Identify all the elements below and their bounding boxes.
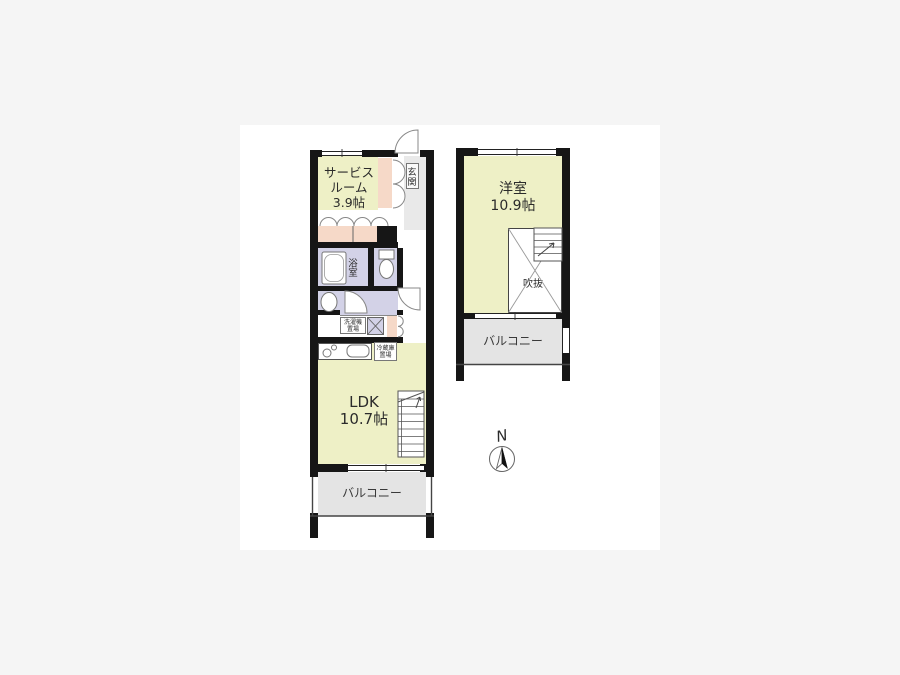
western-room-label: 洋室 10.9帖 (464, 181, 562, 215)
void-label: 吹抜 (508, 275, 558, 290)
wall-segment (556, 313, 562, 319)
closet-mid (318, 226, 377, 242)
window-segment (322, 151, 362, 157)
wall-segment (420, 150, 434, 157)
bathroom (318, 248, 368, 286)
window-segment (478, 149, 556, 155)
bathroom-label: 浴室 (344, 251, 358, 283)
wall-segment (562, 353, 570, 381)
wall-segment (318, 310, 340, 315)
kitchen-counter (318, 343, 372, 360)
wall-segment (556, 148, 570, 156)
fridge-area: 冷蔵庫 置場 (374, 342, 397, 361)
entrance-label-box: 玄関 (406, 163, 419, 189)
fridge-label: 冷蔵庫 置場 (375, 343, 396, 359)
wall-segment (318, 286, 398, 291)
balcony-2f-label: バルコニー (464, 332, 562, 349)
window-segment (348, 465, 424, 471)
window-segment (475, 313, 556, 319)
void-area (508, 228, 562, 313)
washer-label: 洗濯機 置場 (341, 318, 365, 333)
entrance-door-arc-icon (395, 130, 418, 153)
north-arrow-icon (490, 447, 515, 472)
washer-pan (367, 317, 384, 335)
wall-segment (397, 248, 403, 288)
wall-segment (456, 148, 478, 156)
wall-segment (426, 150, 434, 477)
wall-segment (310, 150, 318, 477)
wall-segment (310, 464, 348, 472)
window-segment (562, 328, 570, 353)
wall-segment (397, 310, 403, 315)
wall-segment (368, 248, 374, 286)
closet-top (378, 158, 392, 208)
north-label: N (484, 424, 521, 449)
washing-machine-area: 洗濯機 置場 (340, 317, 366, 334)
wall-segment (310, 242, 398, 248)
service-room-label: サービス ルーム 3.9帖 (318, 165, 380, 210)
ldk-label: LDK 10.7帖 (318, 394, 410, 428)
toilet-room (374, 248, 398, 286)
wall-segment (362, 150, 398, 157)
plan-linework (240, 125, 660, 550)
wall-segment (310, 150, 322, 157)
wall-segment (456, 148, 464, 381)
entrance-label: 玄関 (407, 164, 418, 188)
balcony-1f-label: バルコニー (318, 484, 426, 501)
wall-segment (464, 313, 475, 319)
wall-segment (310, 513, 318, 538)
wall-segment (562, 148, 570, 328)
floor-plan-sheet: 玄関 洗濯機 置場 冷蔵庫 置場 サービス ルーム 3.9帖 浴室 LDK 10… (240, 125, 660, 550)
hallway-door-arc-icon (398, 288, 420, 310)
wall-segment (426, 513, 434, 538)
floor-plan-page: 玄関 洗濯機 置場 冷蔵庫 置場 サービス ルーム 3.9帖 浴室 LDK 10… (0, 0, 900, 675)
closet-hall-strip (387, 315, 397, 337)
